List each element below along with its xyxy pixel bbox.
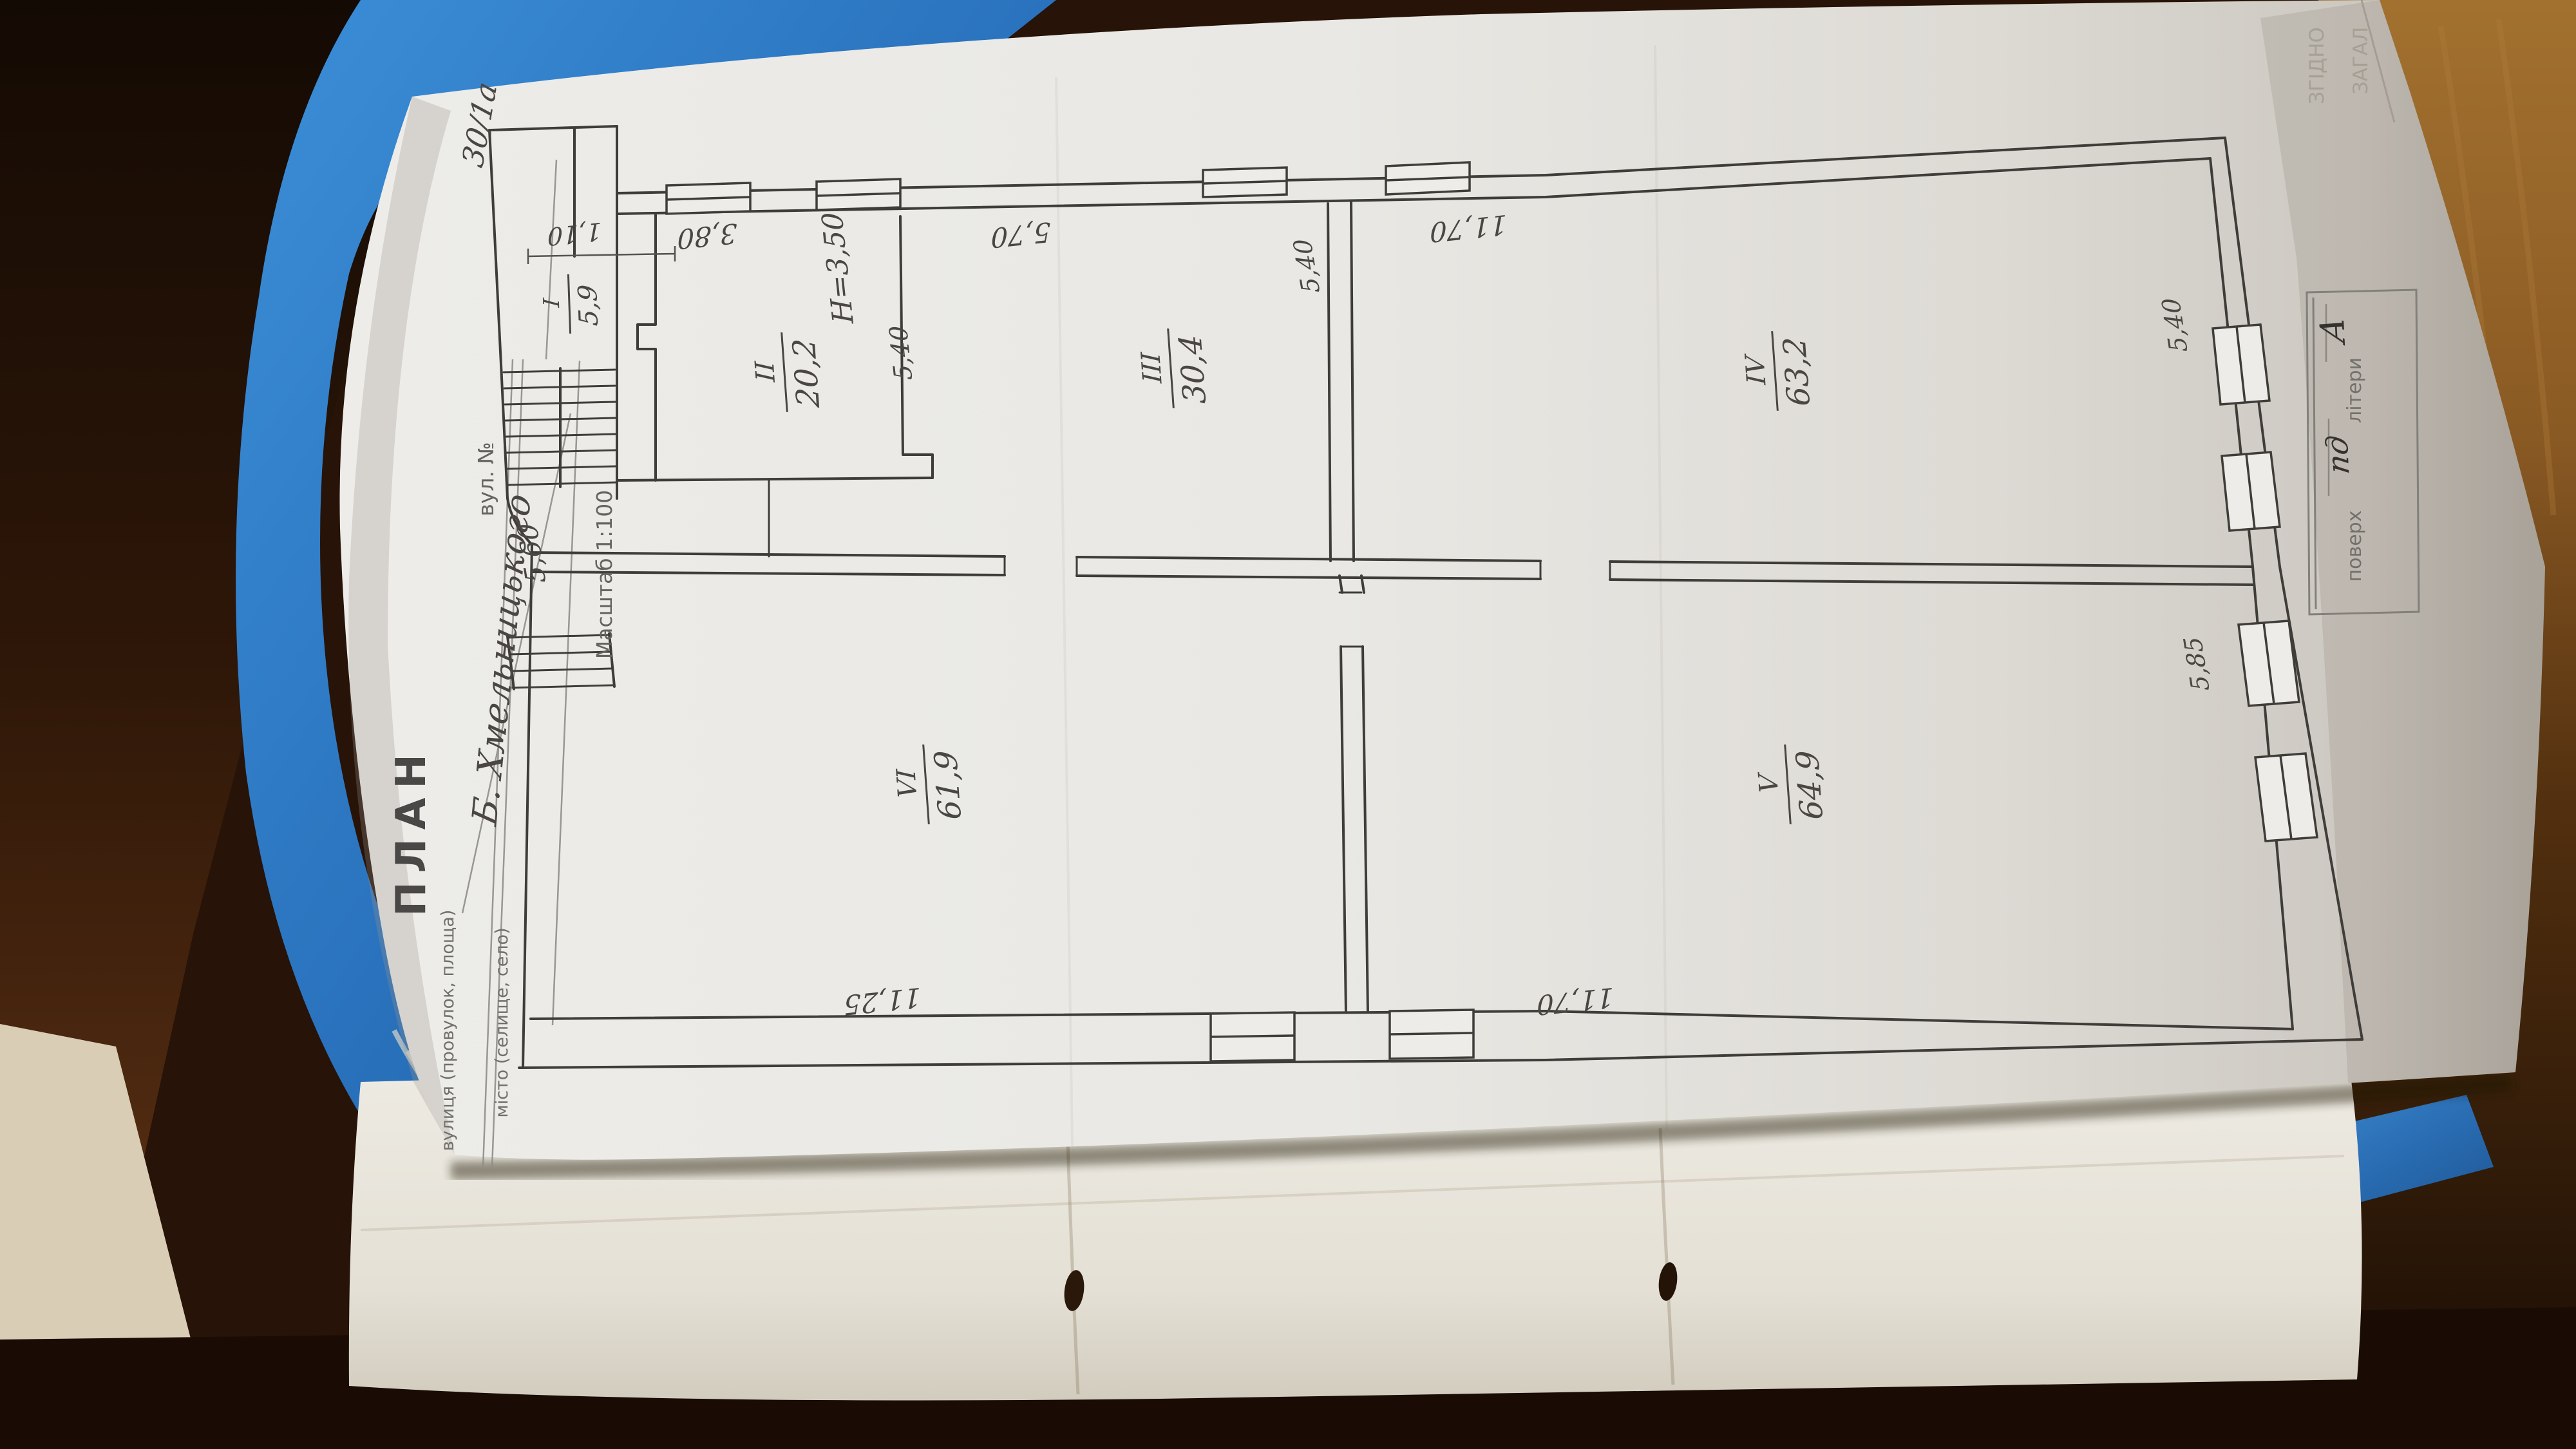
room-2-area: 20,2	[786, 338, 828, 409]
room-6-numeral: VI	[891, 768, 923, 799]
stamp-letter-caption: літери	[2344, 357, 2366, 423]
corner-stamp-line2: ЗАГАЛ	[2349, 27, 2372, 95]
scale-label: Масштаб 1:100	[592, 490, 617, 659]
room-3-numeral: III	[1136, 351, 1168, 384]
building-number-caption: вул. №	[473, 442, 498, 516]
room-5-area: 64,9	[1790, 750, 1831, 820]
room-6-area: 61,9	[928, 750, 969, 820]
stamp-floor-value: пд	[2319, 433, 2356, 475]
dim-5-70: 5,70	[991, 216, 1051, 254]
street-caption: вулиця (провулок, площа)	[438, 910, 458, 1151]
city-caption: місто (селище, село)	[492, 927, 512, 1117]
plan-title: ПЛАН	[388, 745, 435, 916]
dim-1-10: 1,10	[547, 217, 601, 251]
corner-stamp-line1: ЗГІДНО	[2306, 27, 2329, 104]
room-3-area: 30,4	[1173, 334, 1214, 404]
room-4-area: 63,2	[1777, 337, 1818, 407]
dim-5-40-a: 5,40	[884, 326, 918, 380]
room-1-area: 5,9	[573, 284, 604, 327]
room-2-numeral: II	[750, 360, 781, 383]
stamp-floor-caption: поверх	[2344, 511, 2366, 582]
room-4-numeral: IV	[1740, 353, 1772, 386]
photo-of-floor-plan-document: ПЛАН вулиця (провулок, площа) місто (сел…	[0, 0, 2576, 1449]
dim-3-80: 3,80	[677, 217, 737, 255]
